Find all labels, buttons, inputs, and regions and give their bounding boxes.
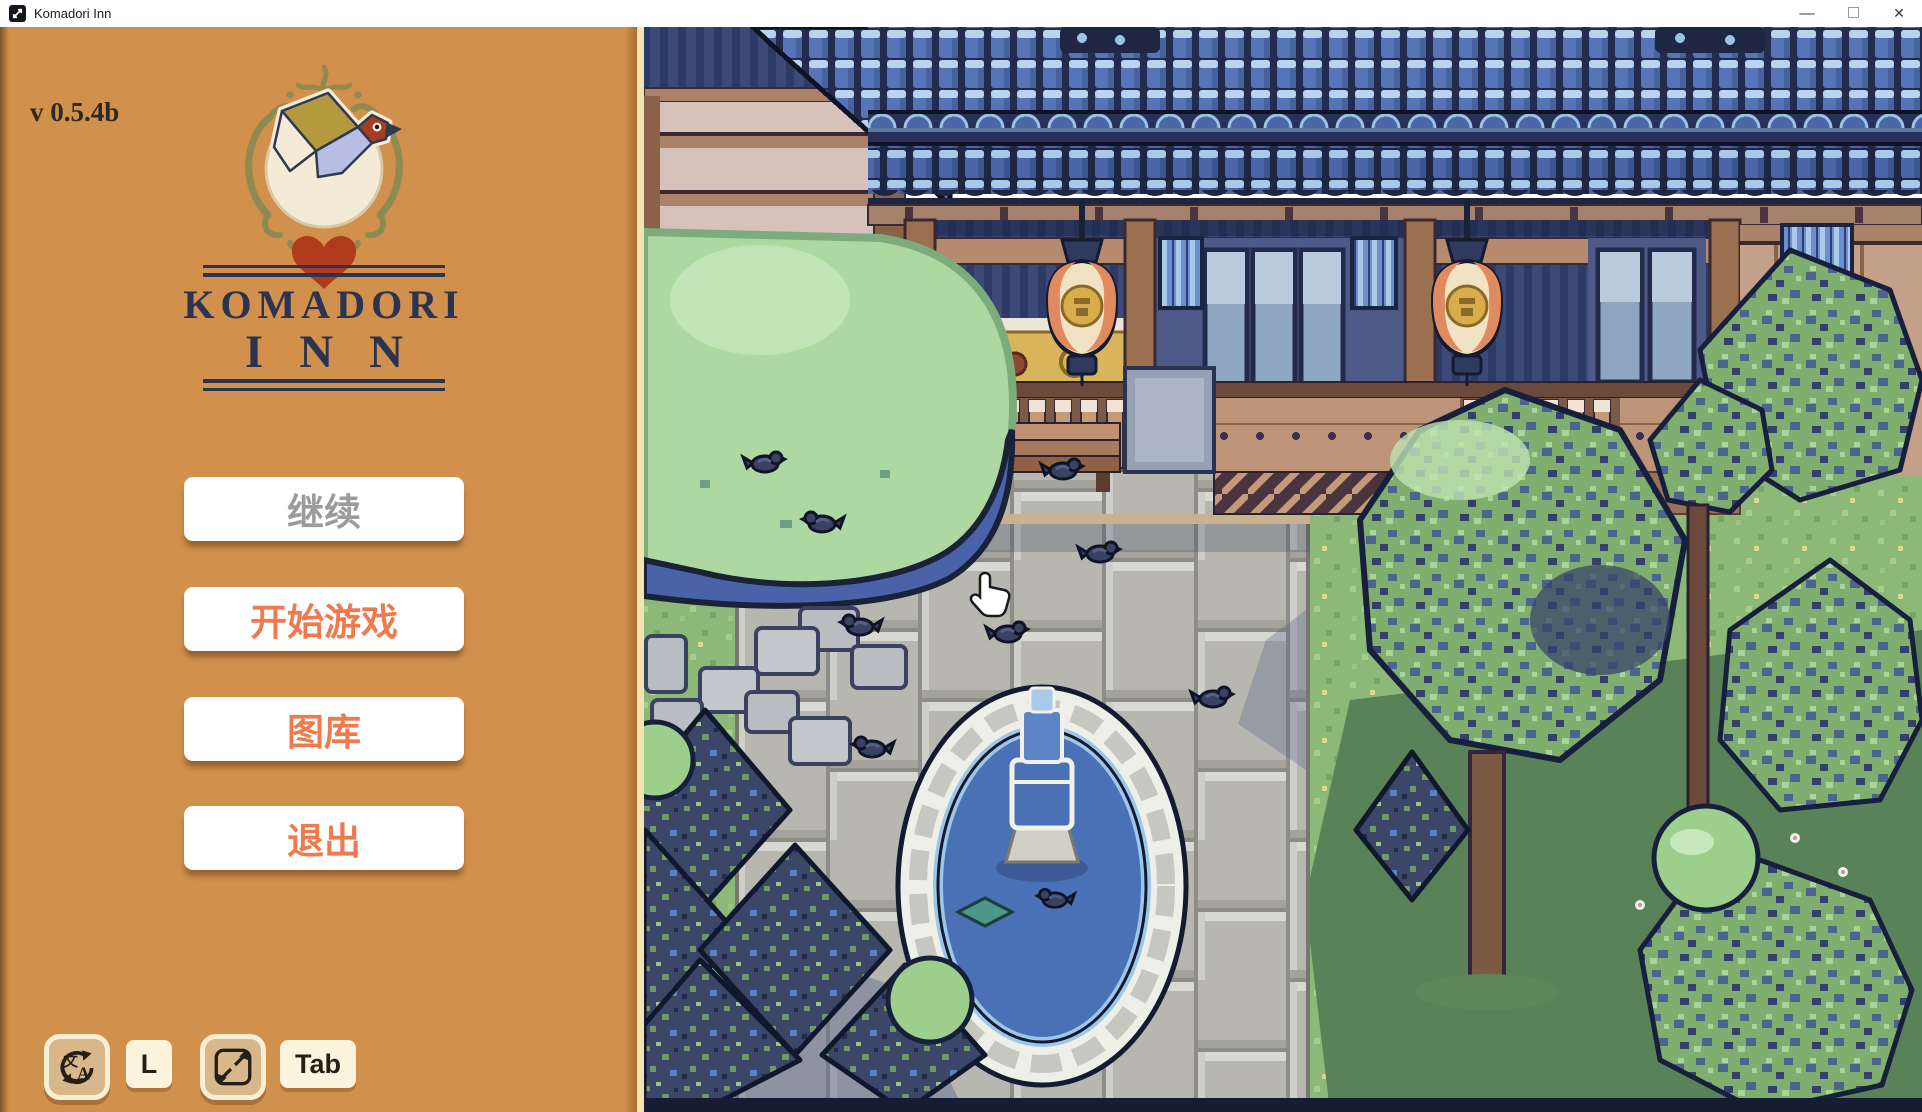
game-subtitle: INN — [164, 325, 484, 379]
fullscreen-icon — [210, 1044, 256, 1090]
maximize-icon — [1848, 7, 1859, 18]
gallery-button[interactable]: 图库 — [184, 697, 464, 761]
minimize-button[interactable]: — — [1784, 0, 1830, 27]
close-button[interactable]: ✕ — [1876, 0, 1922, 27]
title-rule-top-2 — [203, 273, 445, 277]
sidebar-left-shadow — [0, 27, 9, 1112]
window-title: Komadori Inn — [34, 0, 111, 27]
center-windows — [1200, 250, 1350, 394]
title-rule-top — [203, 265, 445, 268]
hedge — [644, 232, 1013, 606]
app-icon — [9, 5, 26, 22]
quit-button[interactable]: 退出 — [184, 806, 464, 870]
game-scene[interactable] — [644, 27, 1922, 1112]
noren-curtain — [1160, 238, 1202, 308]
round-bush — [1654, 806, 1758, 910]
fullscreen-key-badge: Tab — [280, 1040, 356, 1088]
language-key-badge: L — [126, 1040, 172, 1088]
sidebar-right-shadow — [625, 27, 637, 1112]
fullscreen-button[interactable] — [200, 1034, 266, 1100]
application-window: { "window": { "title": "Komadori Inn", "… — [0, 0, 1922, 1112]
language-icon: 文 A — [54, 1044, 100, 1090]
title-rule-bottom-2 — [203, 388, 445, 391]
big-tree-trunk — [1470, 752, 1504, 987]
post — [1405, 220, 1435, 395]
continue-button[interactable]: 继续 — [184, 477, 464, 541]
noren-curtain — [1352, 238, 1396, 308]
menu-sidebar: v 0.5.4b — [0, 27, 644, 1112]
title-bar[interactable]: Komadori Inn — ✕ — [0, 0, 1922, 27]
start-game-button[interactable]: 开始游戏 — [184, 587, 464, 651]
facade — [905, 220, 1740, 395]
roof — [868, 27, 1922, 225]
language-button[interactable]: 文 A — [44, 1034, 110, 1100]
maximize-button[interactable] — [1830, 0, 1876, 27]
version-label: v 0.5.4b — [30, 97, 119, 128]
sidebar-right-border — [637, 27, 644, 1112]
title-rule-bottom — [203, 379, 445, 383]
svg-text:A: A — [77, 1064, 90, 1084]
scene-bottom-strip — [644, 1098, 1922, 1112]
roof-finial — [1655, 27, 1765, 53]
game-logo — [224, 65, 424, 293]
game-title: KOMADORI — [164, 281, 484, 328]
roof-finial — [1060, 27, 1160, 53]
